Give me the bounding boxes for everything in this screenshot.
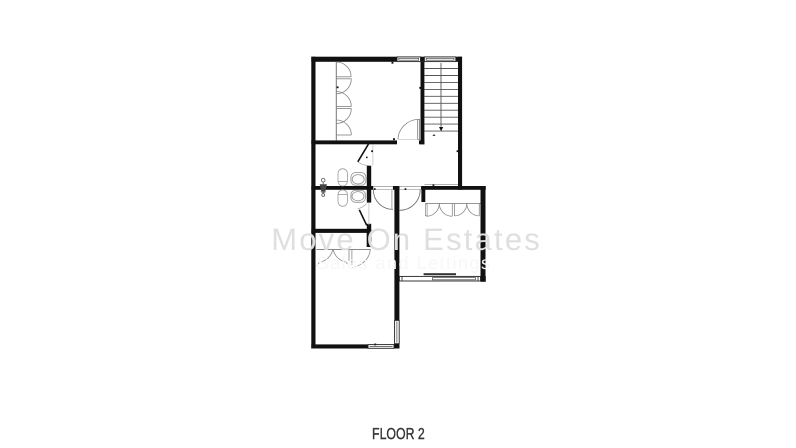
svg-text:Sales and Lettings: Sales and Lettings <box>316 253 491 273</box>
svg-text:Move On Estates: Move On Estates <box>271 222 542 257</box>
svg-text:FLOOR 2: FLOOR 2 <box>372 426 425 443</box>
